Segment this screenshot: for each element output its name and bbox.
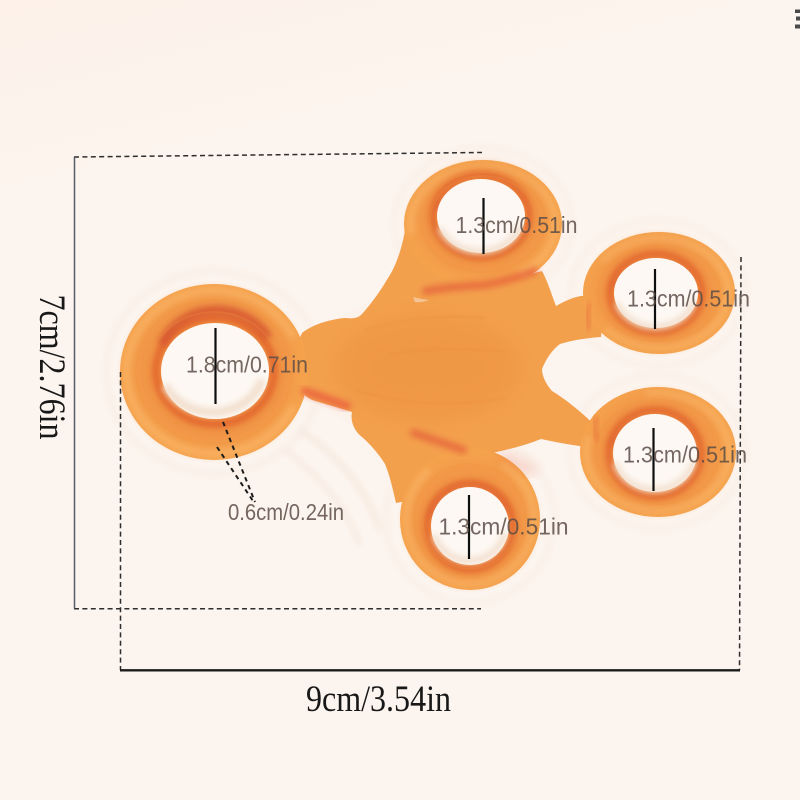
svg-text:0.6cm/0.24in: 0.6cm/0.24in xyxy=(228,499,344,525)
svg-text:1.3cm/0.51in: 1.3cm/0.51in xyxy=(623,442,747,468)
svg-text:1.3cm/0.51in: 1.3cm/0.51in xyxy=(439,514,569,540)
svg-text:1.8cm/0.71in: 1.8cm/0.71in xyxy=(186,352,308,378)
svg-text:1.3cm/0.51in: 1.3cm/0.51in xyxy=(627,286,750,312)
svg-text:1.3cm/0.51in: 1.3cm/0.51in xyxy=(456,212,578,238)
svg-text:9cm/3.54in: 9cm/3.54in xyxy=(306,679,451,720)
svg-text:7cm/2.76in: 7cm/2.76in xyxy=(31,295,72,440)
